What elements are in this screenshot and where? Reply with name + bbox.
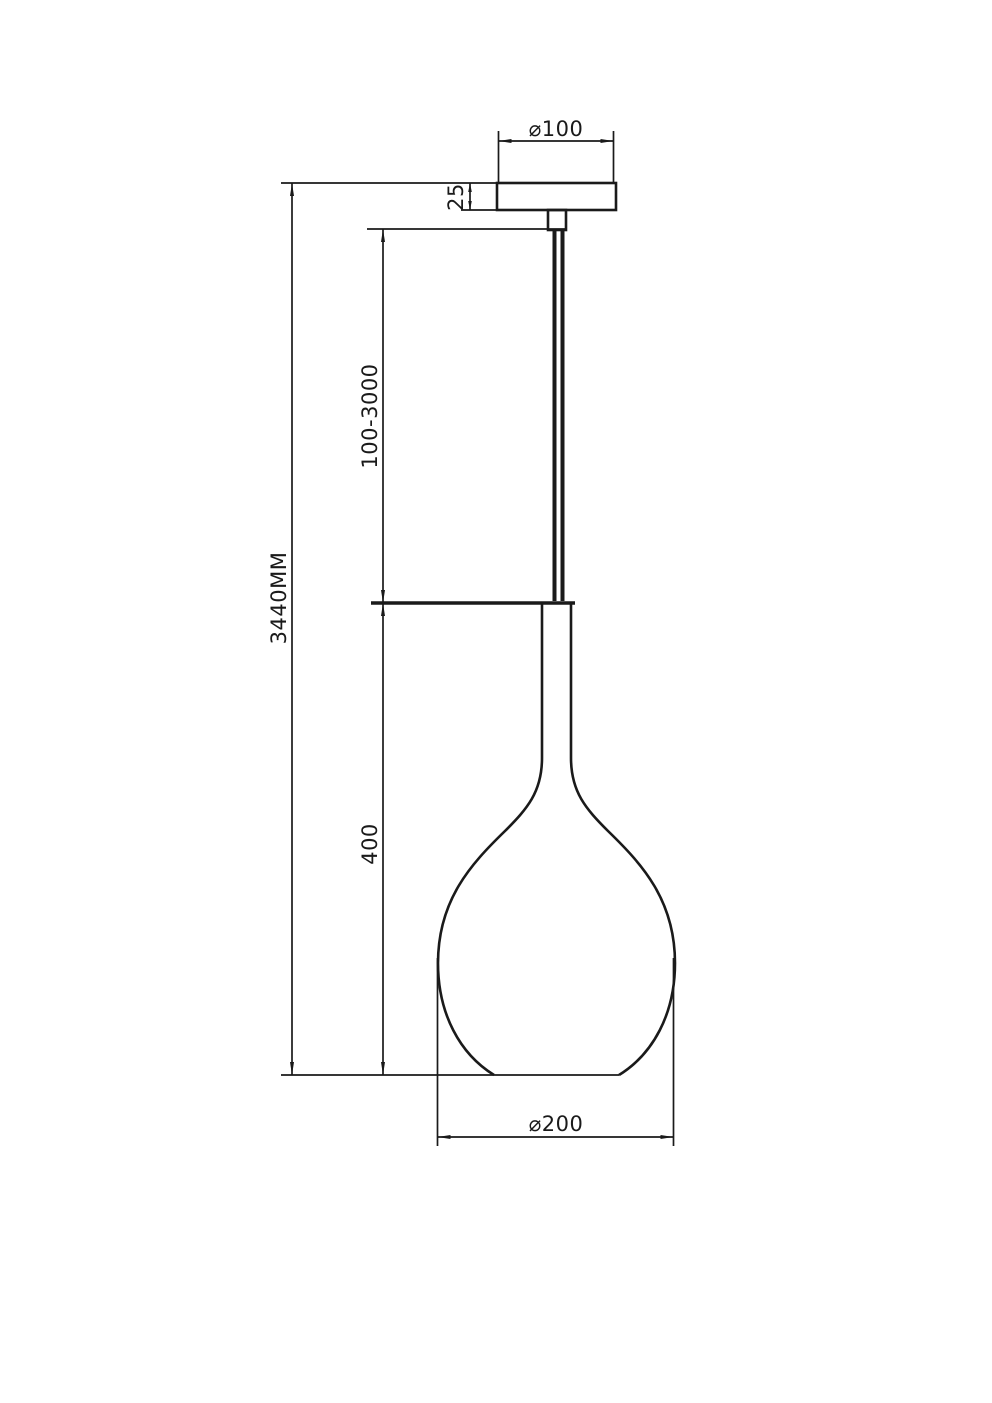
shade-diameter-label: ⌀200 [529,1112,584,1136]
shade-height-label: 400 [358,823,382,865]
canopy-diameter-label: ⌀100 [529,117,584,141]
overall-height-label: 3440MM [267,552,291,645]
canopy-height-label: 25 [444,183,468,211]
drawing-page: ⌀100 25 3440MM 100-3000 400 ⌀200 [0,0,992,1403]
canopy-outline [497,183,616,210]
stem-connector [548,210,566,230]
shade-outline-right [571,604,675,1075]
pendant-lamp-dimension-drawing: ⌀100 25 3440MM 100-3000 400 ⌀200 [0,0,992,1403]
suspension-range-label: 100-3000 [358,363,382,468]
shade-outline-left [438,604,542,1075]
